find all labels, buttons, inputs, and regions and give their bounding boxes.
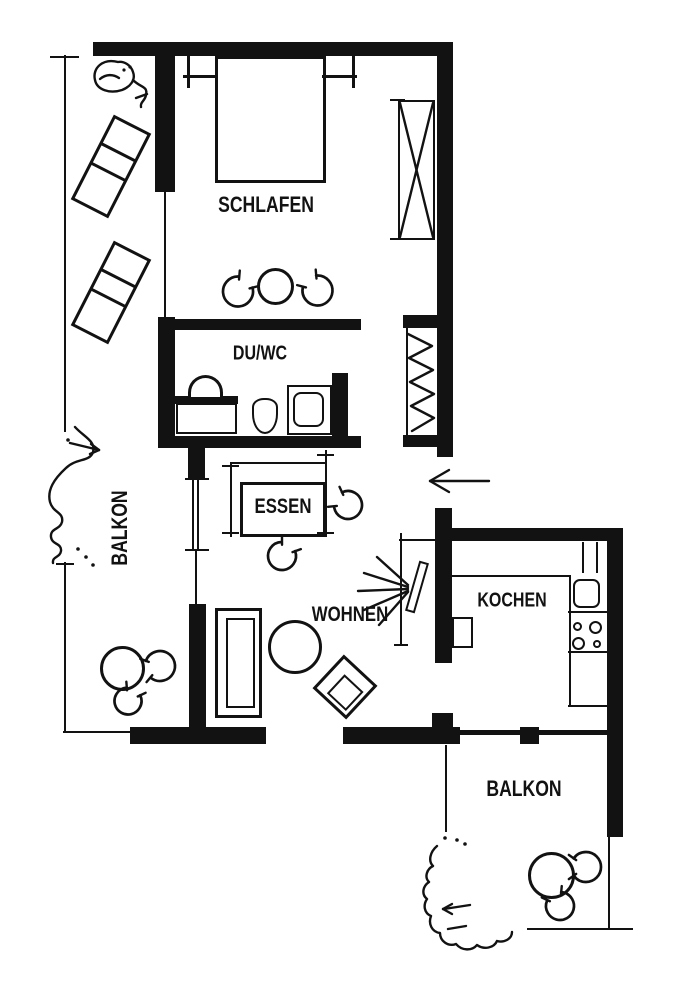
room-label-balkon-west: BALKON — [107, 490, 133, 565]
nightstand-right-line — [352, 56, 355, 88]
wall-top — [93, 42, 453, 56]
balcony-west-edge-upper — [64, 55, 66, 432]
plant-icon — [423, 836, 512, 949]
lounger-fold-line — [101, 142, 136, 162]
wall-kitchen-left — [435, 508, 452, 663]
kitchen-sink — [573, 579, 600, 608]
room-label-duwc: DU/WC — [233, 343, 287, 366]
bedroom-round-table — [257, 268, 294, 305]
plant-icon — [49, 427, 99, 567]
dining-table-tick — [222, 465, 239, 467]
room-label-kochen: KOCHEN — [477, 590, 546, 613]
window-bedroom-left — [164, 192, 167, 317]
stove-burner — [572, 637, 585, 650]
coffee-table — [268, 620, 322, 674]
sofa-seat — [226, 618, 255, 708]
armchair — [312, 654, 377, 719]
wall-wohnen-left-stub — [188, 447, 205, 480]
sideboard-bottom-tick — [394, 644, 408, 646]
chair-icon — [263, 535, 303, 576]
lounger-fold-line — [101, 268, 136, 288]
dining-table-ext-right — [325, 450, 327, 537]
balcony-west-tick-mid — [56, 563, 74, 565]
coatrack-rail-line — [406, 328, 408, 436]
bed — [215, 56, 326, 183]
nightstand-right-tick — [322, 75, 357, 78]
balcony-sued-edge-left — [445, 745, 447, 832]
wall-bottom-right — [343, 727, 460, 744]
dining-table-tick — [317, 532, 334, 534]
stove-burner — [589, 621, 602, 634]
wall-coatrack-top-stub — [403, 315, 437, 328]
chair-icon — [217, 269, 261, 313]
wall-duwc-top — [158, 319, 361, 330]
wardrobe — [398, 100, 435, 240]
lounger-icon — [71, 115, 152, 219]
window-essen-tick-bottom — [185, 549, 209, 551]
wall-wohnen-left — [189, 604, 206, 744]
room-label-schlafen: SCHLAFEN — [218, 192, 314, 218]
balcony-west-round-table — [100, 646, 145, 691]
window-essen-left-a — [192, 480, 194, 551]
balcony-sued-round-table — [528, 852, 575, 899]
entrance-arrow-icon — [430, 470, 489, 492]
wardrobe-tick-bottom — [390, 238, 405, 240]
wall-shower-right — [332, 373, 348, 436]
kitchen-cabinet-line-b — [596, 542, 598, 573]
lounger-icon — [71, 241, 152, 345]
balcony-west-edge-lower — [64, 562, 66, 733]
sideboard-top-line — [399, 539, 436, 541]
dining-table-tick — [317, 454, 334, 456]
lounger-fold-line — [91, 162, 126, 182]
room-label-balkon-sued: BALKON — [486, 776, 561, 802]
kitchen-cabinet-line-a — [582, 542, 584, 573]
wall-kitchen-right — [607, 528, 623, 837]
balcony-west-tick-top — [50, 56, 79, 58]
wall-right-upper — [437, 42, 453, 457]
vanity-counter — [176, 403, 237, 434]
balcony-sued-edge-bottom — [527, 928, 633, 930]
wardrobe-tick-top — [390, 99, 405, 101]
chair-icon — [140, 648, 179, 685]
window-balcony-sued — [458, 730, 608, 735]
wall-coatrack-bottom-stub — [403, 435, 437, 447]
chair-icon — [295, 268, 339, 312]
tv — [405, 561, 429, 614]
plant-icon — [95, 61, 147, 107]
washbasin — [188, 375, 223, 397]
stove-burner — [593, 640, 601, 648]
kitchen-counter-bottom-edge — [568, 705, 607, 707]
coat-rack-icon — [408, 334, 434, 431]
stove-burner — [573, 622, 582, 631]
dining-table-ext-left — [230, 462, 232, 537]
nightstand-left-tick — [183, 75, 218, 78]
balcony-sued-edge-right — [608, 837, 610, 930]
dining-table-tick — [222, 532, 239, 534]
lounger-fold-line — [91, 288, 126, 308]
nightstand-left-line — [187, 56, 190, 88]
wall-kitchen-top — [452, 528, 622, 541]
shower-pan — [293, 392, 324, 427]
wall-balcony-bedroom — [155, 55, 175, 192]
dining-table-ext-top — [230, 462, 327, 464]
kitchen-stove-divider — [568, 651, 607, 653]
window-wohnen-left — [195, 551, 197, 604]
kitchen-sink-divider — [568, 611, 607, 613]
balcony-west-edge-bottom — [63, 731, 131, 733]
sideboard-front-line — [400, 533, 402, 646]
kitchen-appliance — [452, 617, 473, 648]
chair-icon — [327, 485, 367, 524]
kitchen-counter-top-edge — [452, 575, 571, 577]
floor-plan: SCHLAFEN DU/WC ESSEN WOHNEN KOCHEN BALKO… — [0, 0, 698, 1000]
room-label-essen: ESSEN — [255, 495, 312, 519]
window-essen-left-b — [197, 480, 199, 551]
kitchen-counter-right-edge — [569, 576, 571, 707]
window-essen-tick-top — [185, 478, 209, 480]
room-label-wohnen: WOHNEN — [312, 603, 389, 627]
armchair-seat — [327, 674, 364, 711]
toilet — [252, 398, 278, 434]
wall-duwc-left — [158, 317, 175, 448]
